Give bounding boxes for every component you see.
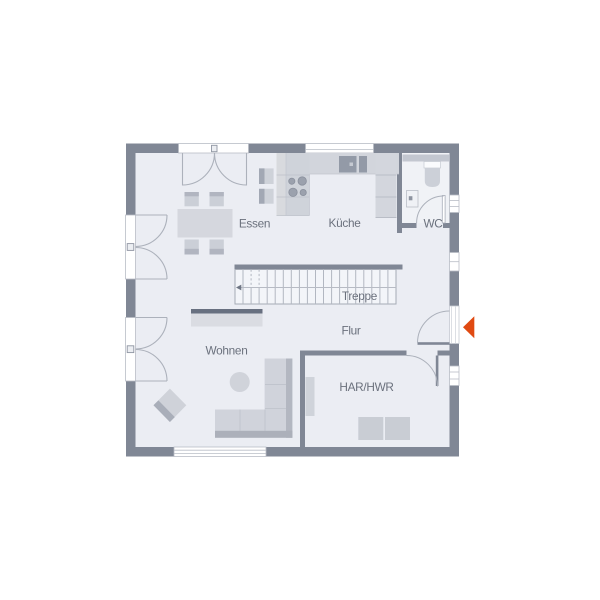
- svg-text:Wohnen: Wohnen: [206, 343, 248, 357]
- svg-text:Essen: Essen: [239, 217, 270, 231]
- svg-text:HAR/HWR: HAR/HWR: [339, 380, 393, 394]
- svg-text:WC: WC: [423, 217, 443, 231]
- svg-text:Flur: Flur: [341, 324, 360, 338]
- svg-text:Küche: Küche: [329, 216, 362, 230]
- svg-text:Treppe: Treppe: [342, 289, 378, 303]
